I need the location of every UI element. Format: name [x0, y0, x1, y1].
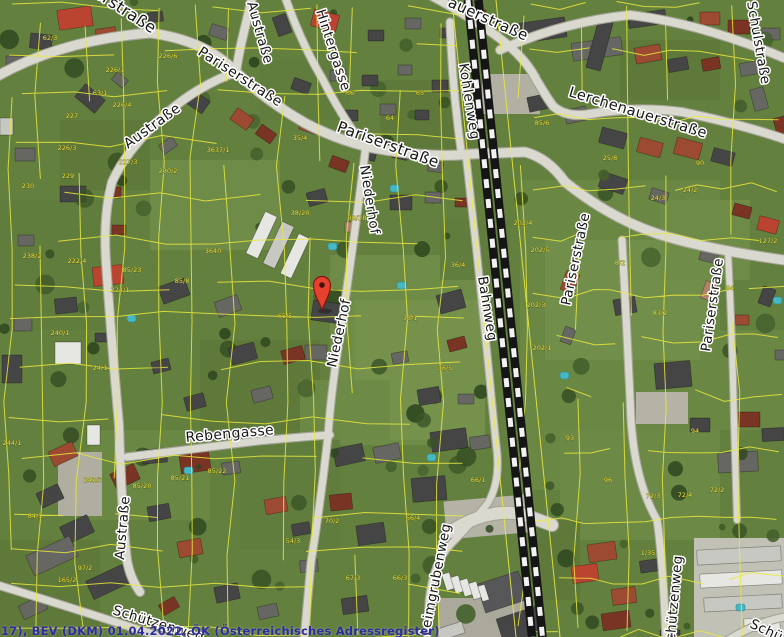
svg-text:8/2: 8/2	[615, 259, 625, 267]
svg-text:227/3: 227/3	[119, 158, 138, 166]
svg-text:85/23: 85/23	[123, 266, 142, 274]
svg-text:72/3: 72/3	[646, 492, 661, 500]
svg-text:66/1: 66/1	[471, 476, 486, 484]
svg-text:226/1: 226/1	[106, 66, 125, 74]
svg-text:65: 65	[416, 89, 424, 97]
svg-text:62/3: 62/3	[43, 34, 58, 42]
svg-text:36/5: 36/5	[438, 364, 453, 372]
svg-text:1/35: 1/35	[641, 549, 656, 557]
svg-text:224/1: 224/1	[111, 286, 130, 294]
svg-text:24/3: 24/3	[651, 194, 666, 202]
svg-text:127/2: 127/2	[759, 237, 778, 245]
svg-text:240/1: 240/1	[51, 329, 70, 337]
map-viewport[interactable]: 62/3226/1226/6226/4227226/3227/322923036…	[0, 0, 784, 637]
svg-text:83/2: 83/2	[653, 309, 668, 317]
svg-text:229: 229	[62, 172, 74, 180]
svg-text:85/8: 85/8	[175, 277, 190, 285]
svg-text:25/8: 25/8	[603, 154, 618, 162]
svg-text:38/28: 38/28	[348, 214, 367, 222]
svg-text:202/1: 202/1	[533, 344, 552, 352]
svg-text:230: 230	[22, 182, 34, 190]
svg-text:85/22: 85/22	[208, 467, 227, 475]
svg-text:24/1: 24/1	[93, 364, 108, 372]
svg-text:165/2: 165/2	[58, 576, 77, 584]
svg-text:84/1: 84/1	[28, 512, 43, 520]
svg-text:64: 64	[386, 114, 394, 122]
street-label: Schützenweg	[111, 603, 206, 637]
svg-text:96: 96	[604, 476, 612, 484]
svg-text:36/4: 36/4	[451, 261, 466, 269]
svg-text:36/1: 36/1	[403, 314, 418, 322]
svg-text:226/4: 226/4	[113, 101, 132, 109]
svg-text:54/3: 54/3	[286, 537, 301, 545]
svg-text:70/2: 70/2	[325, 517, 340, 525]
svg-text:63/1: 63/1	[93, 89, 108, 97]
svg-text:94: 94	[691, 427, 699, 435]
svg-text:226/3: 226/3	[58, 144, 77, 152]
svg-text:202/3: 202/3	[527, 301, 546, 309]
svg-text:226/6: 226/6	[159, 52, 178, 60]
svg-text:35/4: 35/4	[293, 134, 308, 142]
svg-text:72/2: 72/2	[710, 486, 725, 494]
svg-text:202/4: 202/4	[514, 219, 533, 227]
svg-text:67/3: 67/3	[346, 574, 361, 582]
svg-text:85/21: 85/21	[171, 474, 190, 482]
svg-text:244/1: 244/1	[3, 439, 22, 447]
svg-text:90: 90	[696, 159, 704, 167]
svg-text:227: 227	[66, 112, 78, 120]
svg-text:202/5: 202/5	[531, 246, 550, 254]
svg-text:85/20: 85/20	[133, 482, 152, 490]
street-label: auerstraße	[445, 0, 531, 45]
svg-text:243/3: 243/3	[84, 476, 103, 484]
aerial-map: 62/3226/1226/6226/4227226/3227/322923036…	[0, 0, 784, 637]
svg-text:65/5: 65/5	[278, 312, 293, 320]
svg-text:97/2: 97/2	[78, 564, 93, 572]
svg-text:84: 84	[726, 284, 734, 292]
svg-text:238/2: 238/2	[23, 252, 42, 260]
svg-text:72/4: 72/4	[678, 491, 693, 499]
svg-text:66/3: 66/3	[393, 574, 408, 582]
svg-text:222/4: 222/4	[68, 257, 87, 265]
svg-text:85/6: 85/6	[535, 119, 550, 127]
svg-text:93: 93	[566, 434, 574, 442]
svg-text:3640: 3640	[205, 247, 222, 255]
svg-text:230/2: 230/2	[159, 167, 178, 175]
svg-text:3637/1: 3637/1	[207, 146, 230, 154]
svg-text:38/20: 38/20	[291, 209, 310, 217]
svg-text:66/4: 66/4	[406, 514, 421, 522]
svg-text:24/2: 24/2	[683, 186, 698, 194]
